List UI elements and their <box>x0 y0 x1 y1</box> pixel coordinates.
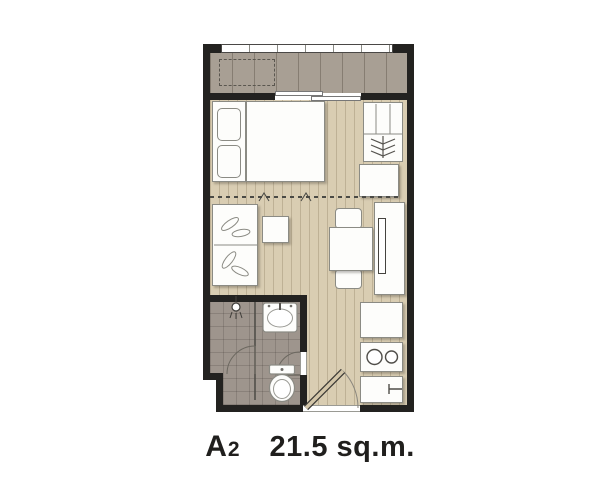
side-table <box>262 216 289 243</box>
bathroom-floor <box>210 302 300 405</box>
wall-balcony-right <box>361 93 407 100</box>
entry-door-opening <box>303 405 360 412</box>
wall-right <box>407 50 414 412</box>
unit-a2-floorplan <box>203 44 414 416</box>
wall-notch-horizontal <box>203 373 223 380</box>
air-conditioner-slot-icon <box>219 59 275 86</box>
kitchen-sink-counter <box>360 376 403 403</box>
wall-bathroom-right-upper <box>300 295 307 352</box>
pillow <box>217 145 241 178</box>
unit-code-letter: A <box>205 430 227 464</box>
wall-bottom-right <box>360 405 407 412</box>
unit-caption: A2 21.5 sq.m. <box>160 430 460 464</box>
wall-left <box>203 50 210 380</box>
wall-balcony-left <box>210 93 275 100</box>
outside-notch <box>203 380 216 412</box>
dining-table <box>329 227 373 271</box>
wardrobe <box>363 102 403 162</box>
bed-headboard-line <box>245 102 247 181</box>
wall-bottom-left <box>216 405 303 412</box>
unit-code-number: 2 <box>228 438 240 462</box>
floorplan-canvas: A2 21.5 sq.m. <box>0 0 607 480</box>
kitchen-counter-fridge <box>360 302 403 338</box>
pillow <box>217 108 241 141</box>
sofa <box>212 204 258 286</box>
bathroom-door-opening <box>300 352 307 375</box>
dining-chair-top <box>335 208 362 229</box>
double-bed <box>212 101 325 182</box>
unit-area-label: 21.5 sq.m. <box>270 431 415 464</box>
tv-icon <box>378 218 386 274</box>
stove-counter <box>360 342 403 372</box>
balcony-railing <box>221 44 393 53</box>
wall-bathroom-top <box>210 295 307 302</box>
cabinet <box>359 164 399 197</box>
dining-chair-bottom <box>335 269 362 289</box>
